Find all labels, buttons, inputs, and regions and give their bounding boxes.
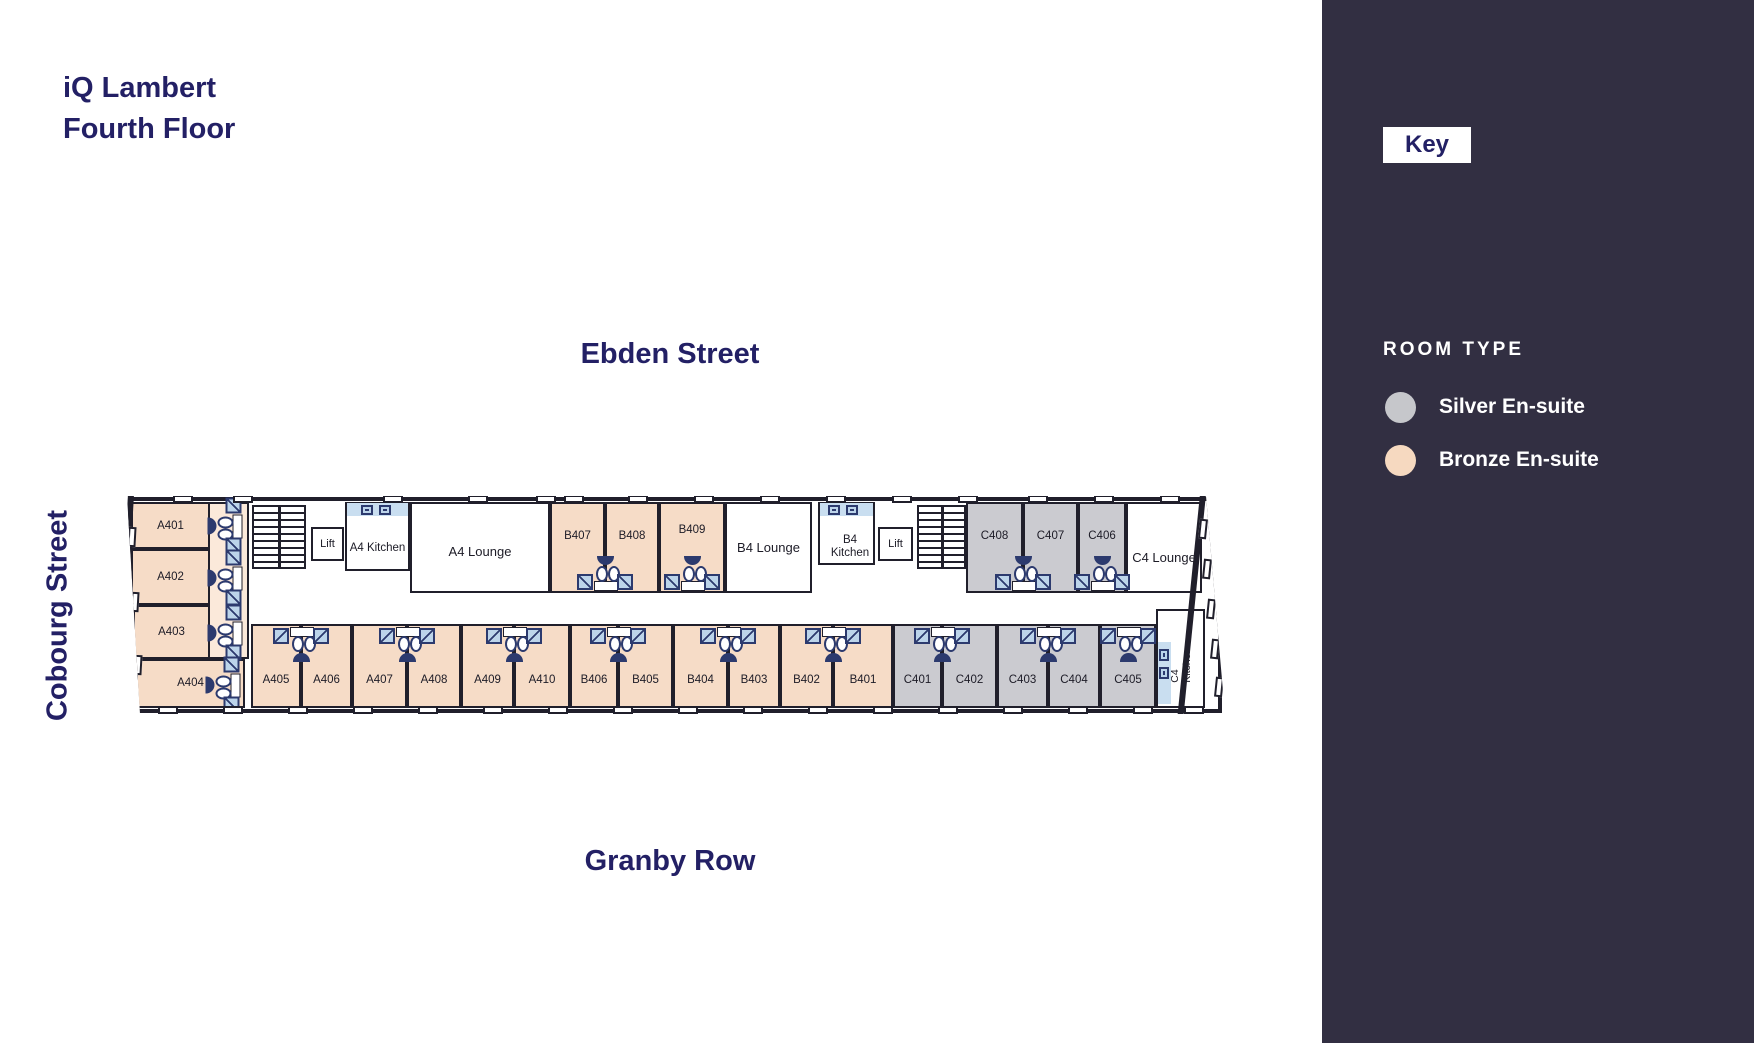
ensuite-pod	[913, 626, 971, 663]
door-arc-icon	[597, 556, 614, 565]
toilet-icon	[216, 676, 232, 688]
shower-icon	[704, 574, 720, 590]
door-arc-icon	[825, 653, 842, 662]
window-mark	[288, 706, 308, 714]
shower-icon	[664, 574, 680, 590]
shower-icon	[740, 628, 756, 644]
door-arc-icon	[684, 556, 701, 565]
window-mark	[223, 706, 243, 714]
oven-icon	[379, 505, 391, 515]
toilet-icon	[1093, 566, 1105, 582]
ensuite-pod	[1019, 626, 1077, 663]
door-arc-icon	[1094, 556, 1111, 565]
window-mark	[468, 495, 488, 503]
window-mark	[678, 706, 698, 714]
window-mark	[483, 706, 503, 714]
window-mark	[892, 495, 912, 503]
window-mark	[133, 655, 142, 675]
key-sidebar: Key ROOM TYPE Silver En-suite Bronze En-…	[1322, 0, 1754, 1043]
toilet-icon	[1014, 566, 1026, 582]
room-a402: A402	[131, 549, 210, 605]
street-label-granby: Granby Row	[510, 845, 830, 878]
window-mark	[613, 706, 633, 714]
door-arc-icon	[208, 570, 217, 587]
ensuite-pod	[207, 497, 244, 555]
window-mark	[694, 495, 714, 503]
window-mark	[873, 706, 893, 714]
shower-icon	[379, 628, 395, 644]
lift-west: Lift	[311, 527, 344, 561]
shower-icon	[486, 628, 502, 644]
lift-east: Lift	[878, 527, 913, 561]
toilet-icon	[398, 636, 410, 652]
window-mark	[1214, 677, 1224, 698]
ensuite-pod	[589, 626, 647, 663]
ensuite-pod	[576, 555, 634, 592]
toilet-icon	[933, 636, 945, 652]
shower-icon	[845, 628, 861, 644]
oven-icon	[846, 505, 858, 515]
street-label-cobourg: Cobourg Street	[42, 456, 75, 776]
shower-icon	[590, 628, 606, 644]
door-arc-icon	[1015, 556, 1032, 565]
sink-icon	[681, 581, 705, 591]
window-mark	[564, 495, 584, 503]
door-arc-icon	[208, 518, 217, 535]
sink-icon	[231, 674, 241, 698]
shower-icon	[1060, 628, 1076, 644]
kitchen-counter-a4	[347, 503, 408, 516]
shower-icon	[419, 628, 435, 644]
toilet-icon	[218, 517, 234, 529]
shower-icon	[1100, 628, 1116, 644]
room-type-heading: ROOM TYPE	[1383, 339, 1524, 361]
shower-icon	[1140, 628, 1156, 644]
hob-icon	[828, 505, 840, 515]
window-mark	[1068, 706, 1088, 714]
window-mark	[130, 592, 139, 612]
door-arc-icon	[1040, 653, 1057, 662]
ensuite-pod	[1099, 626, 1157, 663]
ensuite-pod	[804, 626, 862, 663]
toilet-icon	[1119, 636, 1131, 652]
shower-icon	[995, 574, 1011, 590]
shower-icon	[224, 657, 240, 673]
window-mark	[418, 706, 438, 714]
ensuite-pod	[207, 604, 244, 662]
shower-icon	[577, 574, 593, 590]
window-mark	[1028, 495, 1048, 503]
hob-icon	[1159, 649, 1169, 661]
window-mark	[628, 495, 648, 503]
toilet-icon	[596, 566, 608, 582]
toilet-icon	[1039, 636, 1051, 652]
ensuite-pod	[485, 626, 543, 663]
window-mark	[1133, 706, 1153, 714]
toilet-icon	[505, 636, 517, 652]
toilet-icon	[609, 636, 621, 652]
floor-plan: A401 A402 A403 A404 Lift A4 Kitchen A4 L…	[128, 497, 1222, 713]
room-a401: A401	[131, 502, 210, 549]
shower-icon	[954, 628, 970, 644]
ensuite-pod	[1073, 555, 1131, 592]
stairs-west	[252, 505, 306, 569]
door-arc-icon	[293, 653, 310, 662]
window-mark	[760, 495, 780, 503]
ensuite-pod	[207, 549, 244, 607]
window-mark	[958, 495, 978, 503]
sink-icon	[1012, 581, 1036, 591]
bronze-swatch-icon	[1385, 445, 1416, 476]
room-a4-lounge: A4 Lounge	[410, 502, 550, 593]
window-mark	[548, 706, 568, 714]
window-mark	[808, 706, 828, 714]
shower-icon	[313, 628, 329, 644]
ensuite-pod	[272, 626, 330, 663]
door-arc-icon	[934, 653, 951, 662]
silver-swatch-icon	[1385, 392, 1416, 423]
sink-icon	[233, 515, 243, 539]
window-mark	[173, 495, 193, 503]
oven-icon	[1159, 667, 1169, 679]
stairs-east	[917, 505, 966, 569]
ensuite-pod	[994, 555, 1052, 592]
shower-icon	[273, 628, 289, 644]
toilet-icon	[218, 569, 234, 581]
window-mark	[233, 495, 253, 503]
shower-icon	[526, 628, 542, 644]
shower-icon	[914, 628, 930, 644]
door-arc-icon	[610, 653, 627, 662]
hob-icon	[361, 505, 373, 515]
sink-icon	[233, 622, 243, 646]
shower-icon	[630, 628, 646, 644]
window-mark	[743, 706, 763, 714]
window-mark	[1094, 495, 1114, 503]
window-mark	[383, 495, 403, 503]
sink-icon	[594, 581, 618, 591]
window-mark	[158, 706, 178, 714]
shower-icon	[1020, 628, 1036, 644]
sink-icon	[233, 567, 243, 591]
ensuite-pod	[378, 626, 436, 663]
window-mark	[353, 706, 373, 714]
door-arc-icon	[506, 653, 523, 662]
toilet-icon	[719, 636, 731, 652]
door-arc-icon	[399, 653, 416, 662]
room-b4-lounge: B4 Lounge	[725, 502, 812, 593]
sink-icon	[1091, 581, 1115, 591]
shower-icon	[1114, 574, 1130, 590]
shower-icon	[226, 550, 242, 566]
door-arc-icon	[720, 653, 737, 662]
legend-silver: Silver En-suite	[1385, 391, 1585, 423]
street-label-ebden: Ebden Street	[510, 338, 830, 371]
shower-icon	[805, 628, 821, 644]
toilet-icon	[824, 636, 836, 652]
window-mark	[127, 527, 136, 547]
shower-icon	[226, 605, 242, 621]
shower-icon	[700, 628, 716, 644]
toilet-icon	[218, 624, 234, 636]
ensuite-pod	[205, 656, 242, 714]
window-mark	[1160, 495, 1180, 503]
shower-icon	[1035, 574, 1051, 590]
door-arc-icon	[208, 625, 217, 642]
page-title: iQ LambertFourth Floor	[63, 68, 235, 150]
window-mark	[1184, 706, 1204, 714]
window-mark	[1003, 706, 1023, 714]
window-mark	[536, 495, 556, 503]
toilet-icon	[683, 566, 695, 582]
room-a403: A403	[133, 605, 210, 659]
shower-icon	[617, 574, 633, 590]
window-mark	[1210, 639, 1220, 660]
legend-bronze: Bronze En-suite	[1385, 444, 1599, 476]
ensuite-pod	[699, 626, 757, 663]
ensuite-pod	[663, 555, 721, 592]
window-mark	[826, 495, 846, 503]
door-arc-icon	[206, 677, 215, 694]
shower-icon	[1074, 574, 1090, 590]
door-arc-icon	[1120, 653, 1137, 662]
key-title: Key	[1383, 127, 1471, 163]
window-mark	[938, 706, 958, 714]
toilet-icon	[292, 636, 304, 652]
